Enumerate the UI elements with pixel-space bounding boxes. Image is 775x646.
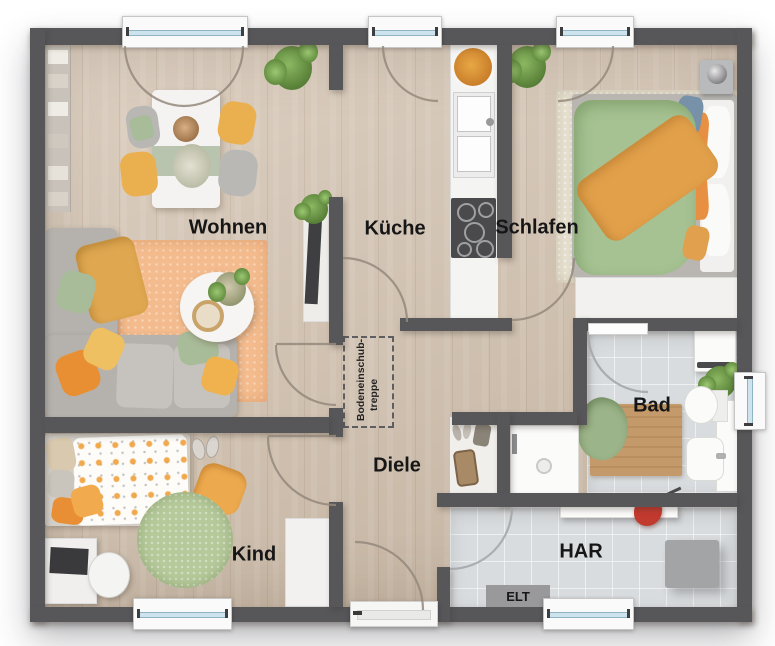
wall-bad-har xyxy=(437,493,737,507)
room-label-wohnen: Wohnen xyxy=(189,217,268,240)
loft-stairs-line1: Bodeneinschub- xyxy=(355,335,368,425)
wall-wohnen-kind xyxy=(45,417,329,433)
wall-kind-right-lower xyxy=(329,502,343,607)
window-tick xyxy=(435,27,438,36)
sink-basin-1 xyxy=(457,96,491,132)
entry-door-sill xyxy=(350,601,438,627)
loft-stairs-line2: treppe xyxy=(368,335,381,425)
window-tick xyxy=(126,27,129,36)
window-glass xyxy=(139,612,226,618)
coffee-table-plant xyxy=(214,272,246,306)
monitor xyxy=(49,547,88,575)
chair-yellow-2 xyxy=(119,150,159,198)
burner-4 xyxy=(457,242,472,257)
speaker-sphere xyxy=(707,64,727,84)
wall-kind-right-upper xyxy=(329,408,343,437)
elt-box: ELT xyxy=(486,585,550,607)
wall-wohnen-kueche-stub xyxy=(329,45,343,90)
window-tick xyxy=(560,27,563,36)
centerpiece-bouquet xyxy=(173,144,211,188)
shower-head xyxy=(512,434,517,454)
washbasin-faucet xyxy=(716,453,726,459)
shower-drain xyxy=(536,458,552,474)
washing-machine xyxy=(665,540,719,588)
wall-bottom-1 xyxy=(30,607,133,622)
sink-basin-2 xyxy=(457,136,491,172)
wall-top-3 xyxy=(440,28,556,45)
room-label-elt: ELT xyxy=(486,585,550,607)
wall-wohnen-right xyxy=(329,197,343,345)
wall-top-4 xyxy=(632,28,752,45)
wall-niche-top xyxy=(452,412,577,425)
window-kueche xyxy=(368,16,442,48)
window-tick xyxy=(627,27,630,36)
bookshelf xyxy=(46,46,71,212)
toilet-bowl xyxy=(684,386,718,424)
window-wohnen xyxy=(122,16,248,48)
window-glass xyxy=(562,30,628,36)
window-har xyxy=(543,598,634,630)
kind-wardrobe xyxy=(285,518,331,607)
window-glass xyxy=(128,30,242,36)
window-tick xyxy=(372,27,375,36)
window-tick xyxy=(547,609,550,618)
wall-kueche-bottom xyxy=(400,318,512,331)
floor-plan: ELT Bodeneinschub- treppe xyxy=(0,0,775,646)
faucet xyxy=(486,118,494,126)
entry-door-handle xyxy=(353,611,362,615)
bookshelf-books xyxy=(48,50,68,64)
wall-left xyxy=(30,28,45,622)
sofa-cushion-1 xyxy=(116,343,174,409)
window-kind xyxy=(133,598,232,630)
wall-right-upper xyxy=(737,28,752,374)
fruit-plate xyxy=(454,48,492,86)
wall-right-lower xyxy=(737,426,752,622)
window-tick xyxy=(225,609,228,618)
washbasin xyxy=(686,437,724,481)
coffee-table-bowl xyxy=(192,300,224,332)
cooktop xyxy=(451,198,496,258)
burner-5 xyxy=(476,240,494,258)
desk-chair xyxy=(88,552,130,598)
burner-1 xyxy=(457,203,476,222)
window-tick xyxy=(627,609,630,618)
room-label-kueche: Küche xyxy=(364,218,425,241)
plant-wohnen xyxy=(272,46,312,90)
wall-diele-bad xyxy=(573,318,587,425)
wall-niche-divider xyxy=(497,412,510,505)
plant-schlafen xyxy=(508,46,546,88)
window-glass xyxy=(747,378,753,424)
window-tick xyxy=(744,376,753,379)
bad-door-leaf xyxy=(588,323,648,335)
room-label-schlafen: Schlafen xyxy=(495,217,578,240)
room-label-har: HAR xyxy=(559,541,602,564)
wardrobe-schlafen xyxy=(575,277,739,320)
room-label-diele: Diele xyxy=(373,455,421,478)
window-tick xyxy=(137,609,140,618)
window-glass xyxy=(374,30,436,36)
wall-har-left xyxy=(437,567,450,622)
entry-door-panel xyxy=(357,610,431,620)
rug-kind xyxy=(137,492,233,588)
window-tick xyxy=(744,423,753,426)
loft-stairs-label: Bodeneinschub- treppe xyxy=(355,335,381,425)
room-label-bad: Bad xyxy=(633,395,671,418)
burner-2 xyxy=(478,202,494,218)
wall-bottom-2 xyxy=(230,607,353,622)
window-glass xyxy=(549,612,628,618)
wall-bottom-4 xyxy=(632,607,752,622)
window-bad xyxy=(734,372,766,430)
window-tick xyxy=(241,27,244,36)
plant-sideboard xyxy=(300,194,328,224)
chair-gray-2 xyxy=(217,148,260,198)
room-label-kind: Kind xyxy=(232,544,276,567)
window-schlafen xyxy=(556,16,634,48)
centerpiece-bowl xyxy=(173,116,199,142)
wall-top-2 xyxy=(246,28,368,45)
